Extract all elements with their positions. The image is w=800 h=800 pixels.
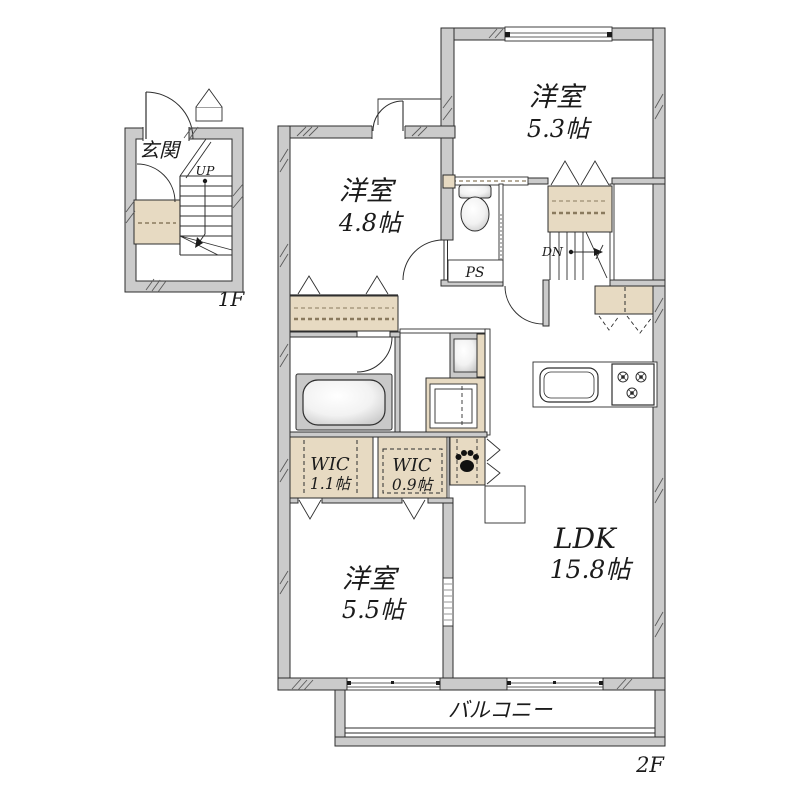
hall-ldk-door-arc xyxy=(505,286,543,324)
floorplan-page: 玄関 UP 1F xyxy=(0,0,800,800)
folding-door-upper xyxy=(487,439,500,461)
bedroom-sw-name: 洋室 xyxy=(342,564,400,595)
wic-small: WIC 0.9帖 xyxy=(378,437,447,498)
window-south-ldk xyxy=(507,678,603,690)
window-interior xyxy=(443,578,453,626)
floor-1f-plan: 玄関 UP 1F xyxy=(125,89,245,311)
wic-small-name: WIC xyxy=(392,455,432,476)
bedroom-nw-size: 4.8帖 xyxy=(338,209,404,237)
storage-under-stairs xyxy=(595,286,653,333)
closet-ne xyxy=(548,161,612,232)
wic-large-size: 1.1帖 xyxy=(310,475,353,493)
bathroom-door-arc xyxy=(357,337,392,372)
stairs-up-label: UP xyxy=(196,163,216,178)
pipe-space-label: PS xyxy=(464,265,484,281)
floor2-label: 2F xyxy=(635,753,665,777)
floor-2f-plan: PS xyxy=(278,27,665,777)
folding-door-lower xyxy=(487,463,500,484)
kitchen-sink xyxy=(540,368,598,402)
entrance-label: 玄関 xyxy=(139,138,182,162)
kitchen-counter xyxy=(533,362,657,407)
stairs-down-label: DN xyxy=(541,244,564,259)
floor1-label: 1F xyxy=(218,287,246,311)
bathroom xyxy=(296,337,392,430)
ldk-size: 15.8帖 xyxy=(550,555,634,584)
ldk-name: LDK xyxy=(553,522,618,555)
toilet-fixture xyxy=(459,185,491,231)
bedroom-ne-name: 洋室 xyxy=(529,82,587,113)
stove xyxy=(612,364,654,405)
shoe-cabinet xyxy=(134,200,180,244)
refrigerator-space xyxy=(485,486,525,523)
pet-space xyxy=(450,437,500,485)
wic-small-size: 0.9帖 xyxy=(392,476,435,494)
bathtub xyxy=(296,374,392,430)
washing-machine-space xyxy=(426,378,485,432)
toilet-room: PS xyxy=(403,175,528,282)
wic-large-name: WIC xyxy=(310,454,350,475)
floor-plan-canvas: 玄関 UP 1F xyxy=(0,0,800,800)
window-north xyxy=(505,27,612,41)
balcony: バルコニー xyxy=(335,690,665,746)
bedroom-sw-size: 5.5帖 xyxy=(342,596,407,624)
window-south-bedroom xyxy=(347,678,440,690)
vanity xyxy=(450,333,485,378)
porch-canopy xyxy=(196,89,222,121)
balcony-label: バルコニー xyxy=(448,698,554,722)
bedroom-nw-name: 洋室 xyxy=(339,176,397,207)
wic-large: WIC 1.1帖 xyxy=(290,437,373,498)
bedroom-ne-size: 5.3帖 xyxy=(527,115,592,143)
closet-nw xyxy=(290,276,398,331)
toilet-door-arc xyxy=(403,240,448,280)
